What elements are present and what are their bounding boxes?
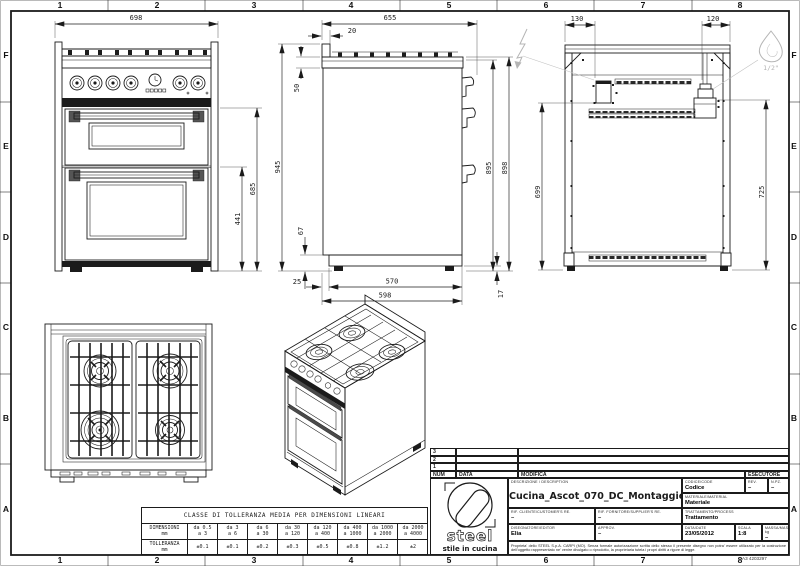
grid-col-label: 1 (54, 0, 66, 11)
grid-row-label: D (788, 232, 800, 243)
rev-num: 2 (430, 456, 456, 464)
massa-cell: MASSA/MASS kg– (762, 524, 789, 541)
disegnatore-cell: DISEGNATORE/EDITORElia (508, 524, 595, 541)
grid-row-label: A (788, 504, 800, 515)
codice-cell: CODICE/CODECodice (682, 478, 745, 493)
tolerance-value: ±2 (398, 540, 428, 555)
tolerance-value: ±0.2 (248, 540, 278, 555)
dim-range: da 120a 400 (308, 524, 338, 539)
dim-side-plinth: 67 (297, 227, 305, 235)
knob-row (70, 76, 205, 90)
grid-row-label: E (0, 141, 12, 152)
grid-row-label: E (788, 141, 800, 152)
grid-col-label: 2 (151, 0, 163, 11)
logo-tagline: stile in cucina (443, 545, 498, 553)
dim-side-base: 570 (386, 278, 399, 286)
dim-side-depth: 655 (384, 14, 397, 22)
dim-side-foot: 17 (497, 290, 505, 298)
dim-front-width: 698 (130, 14, 143, 22)
steel-logo-icon (448, 483, 492, 527)
grid-col-label: 4 (345, 0, 357, 11)
rev-num: 1 (430, 463, 456, 471)
tolerance-value: ±0.1 (218, 540, 248, 555)
grid-col-label: 7 (637, 0, 649, 11)
tolerance-table: CLASSE DI TOLLERANZA MEDIA PER DIMENSION… (141, 507, 428, 555)
grid-col-label: 3 (248, 0, 260, 11)
tolerance-values-row: TOLLERANZAmm ±0.1 ±0.1 ±0.2 ±0.3 ±0.5 ±0… (142, 540, 427, 555)
dim-back-elec-height: 699 (534, 186, 542, 199)
rev-cell: REV.– (745, 478, 768, 493)
drawing-sheet: .o{fill:none;stroke:#1b1b1b;stroke-width… (0, 0, 800, 566)
logo-name: steel (447, 527, 494, 545)
dim-front-height: 685 (249, 183, 257, 196)
grid-col-label: 6 (540, 0, 552, 11)
company-logo: steel stile in cucina (430, 478, 508, 555)
dim-front-lower: 441 (234, 213, 242, 226)
materiale-cell: MATERIALE/MATERIALMateriale (682, 493, 789, 508)
dim-side-back2: 898 (501, 162, 509, 175)
rev-header-modifica: MODIFICA (518, 471, 745, 479)
dim-side-top-offset: 20 (348, 27, 356, 35)
top-view (45, 324, 212, 482)
dim-range: da 30a 120 (278, 524, 308, 539)
dim-back-gas: 120 (707, 15, 720, 23)
sheet-code: A3 4203297 (742, 556, 792, 561)
grid-col-label: 4 (345, 555, 357, 566)
drawing-title: Cucina_Ascot_070_DC_Montaggio (509, 491, 681, 502)
grid-col-label: 1 (54, 555, 66, 566)
grid-row-label: F (0, 50, 12, 61)
grid-col-label: 7 (637, 555, 649, 566)
dim-back-gas-height: 725 (758, 186, 766, 199)
tolerance-dimensions-row: DIMENSIONImm da 0.5a 3 da 3a 6 da 6a 30 … (142, 524, 427, 540)
dim-side-inset: 25 (293, 278, 301, 286)
electrical-box (593, 81, 618, 104)
title-block: 3 2 1 NUM DATA MODIFICA ESECUTORE steel … (430, 448, 789, 555)
grid-row-label: B (0, 413, 12, 424)
back-view: 130 120 699 725 1/2" (515, 15, 783, 271)
grid-col-label: 3 (248, 555, 260, 566)
rif-cliente-cell: RIF. CLIENTE/CUSTOMER'S RE.– (508, 508, 595, 524)
tolerance-table-title: CLASSE DI TOLLERANZA MEDIA PER DIMENSION… (142, 508, 427, 524)
dim-range: da 0.5a 3 (188, 524, 218, 539)
grid-col-label: 5 (443, 555, 455, 566)
grid-col-label: 6 (540, 555, 552, 566)
dim-range: da 2000a 4000 (398, 524, 428, 539)
dim-range: da 3a 6 (218, 524, 248, 539)
tolerance-value: ±0.8 (338, 540, 368, 555)
lightning-icon (515, 29, 595, 80)
side-view: 655 20 50 945 67 895 898 570 25 598 17 (274, 14, 513, 305)
gas-thread-label: 1/2" (763, 64, 779, 72)
grid-row-label: C (0, 322, 12, 333)
gas-inlet (694, 53, 720, 118)
dim-side-splash: 50 (293, 84, 301, 92)
dim-side-overall: 598 (379, 292, 392, 300)
dim-range: da 1000a 2000 (368, 524, 398, 539)
tolerance-value: ±0.1 (188, 540, 218, 555)
npz-cell: N.PZ.– (768, 478, 789, 493)
grid-row-label: F (788, 50, 800, 61)
legal-cell: Proprieta' dello STEEL S.p.A. CARPI (MO)… (508, 541, 789, 555)
front-view: 698 685 441 (55, 14, 262, 272)
dim-range: da 6a 30 (248, 524, 278, 539)
dim-side-back1: 895 (485, 162, 493, 175)
burner-bottom-left (81, 411, 119, 449)
rev-header-data: DATA (456, 471, 518, 479)
grid-row-label: D (0, 232, 12, 243)
dim-range: da 400a 1000 (338, 524, 368, 539)
rev-num: 3 (430, 448, 456, 456)
rif-fornitore-cell: RIF. FORNITORE/SUPPLIER'S RE.– (595, 508, 682, 524)
grid-col-label: 5 (443, 0, 455, 11)
scala-cell: SCALA1:8 (735, 524, 762, 541)
trattamento-cell: TRATTAMENTO/PROCESSTrattamento (682, 508, 789, 524)
isometric-view (285, 295, 425, 495)
tolerance-value: ±1.2 (368, 540, 398, 555)
grid-row-label: B (788, 413, 800, 424)
dim-side-height: 945 (274, 161, 282, 174)
data-cell: DATA/DATE23/05/2012 (682, 524, 735, 541)
grid-col-label: 8 (734, 0, 746, 11)
clock-icon (149, 74, 161, 86)
approv-cell: APPROV.– (595, 524, 682, 541)
description-cell: DESCRIZIONE / DESCRIPTION Cucina_Ascot_0… (508, 478, 682, 508)
rev-header-esecutore: ESECUTORE (745, 471, 789, 479)
grid-row-label: C (788, 322, 800, 333)
tolerance-value: ±0.5 (308, 540, 338, 555)
grid-col-label: 2 (151, 555, 163, 566)
tolerance-value: ±0.3 (278, 540, 308, 555)
dim-back-elec: 130 (571, 15, 584, 23)
legal-text: Proprieta' dello STEEL S.p.A. CARPI (MO)… (509, 542, 788, 554)
rev-header-num: NUM (430, 471, 456, 479)
grid-row-label: A (0, 504, 12, 515)
screw-dots (571, 59, 725, 249)
